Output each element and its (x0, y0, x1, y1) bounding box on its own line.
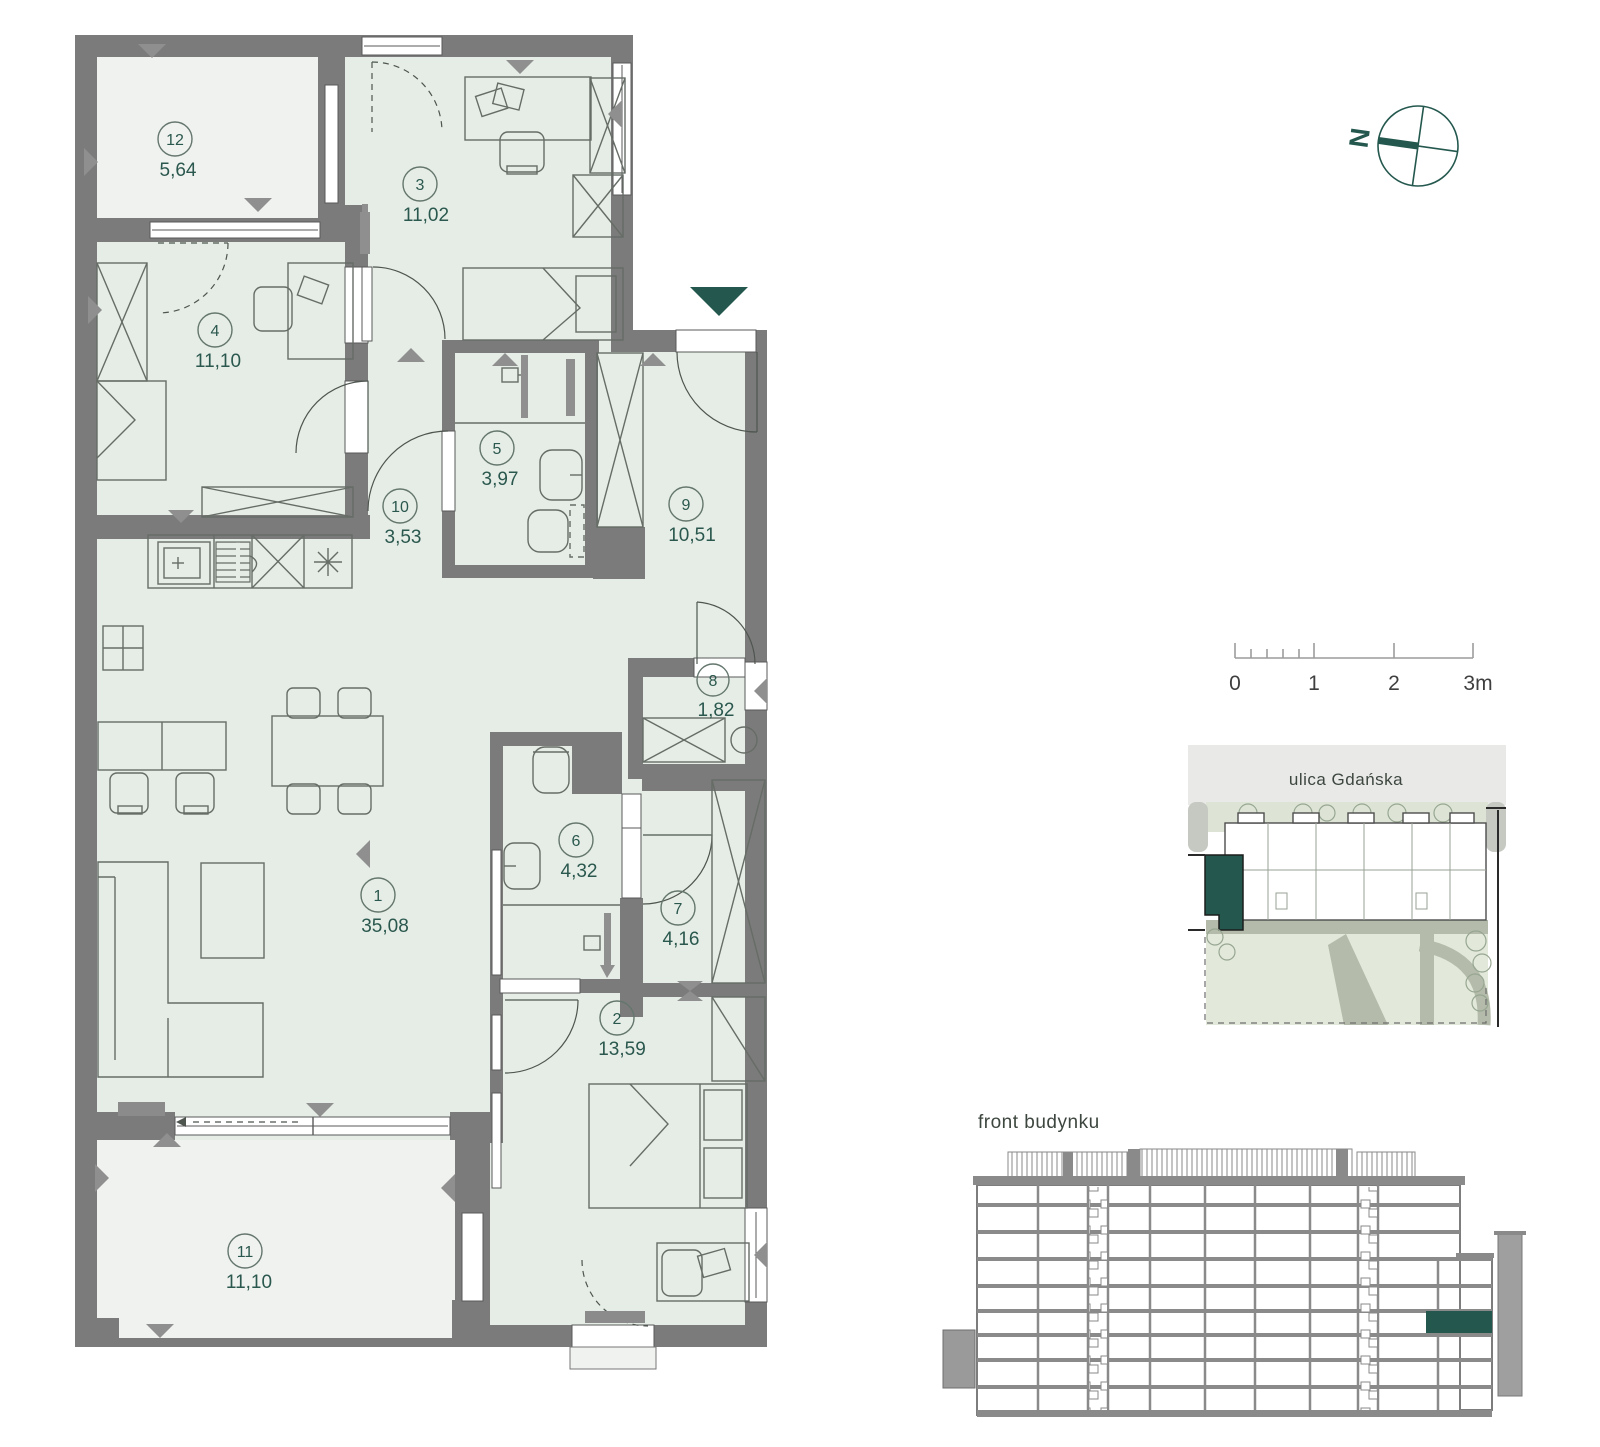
stair-column (1089, 1187, 1107, 1410)
plan-sheet: 135,08 213,59 311,02 411,10 53,97 64,32 … (0, 0, 1600, 1447)
svg-text:3,97: 3,97 (482, 469, 519, 490)
entrance-block (943, 1330, 975, 1388)
svg-text:12: 12 (166, 132, 184, 149)
scale-3m: 3m (1463, 672, 1492, 695)
roof-railings (1008, 1149, 1415, 1177)
front-elevation: front budynku (943, 1112, 1526, 1417)
north-label: N (1343, 126, 1375, 149)
shower-icon (604, 913, 611, 971)
radiator (566, 359, 575, 416)
balcony-12-floor (97, 57, 318, 220)
site-plan: ulica Gdańska (1188, 745, 1506, 1027)
stove (216, 542, 250, 582)
svg-text:11,10: 11,10 (226, 1272, 272, 1293)
side-slab (1498, 1233, 1522, 1396)
elevation-label: front budynku (978, 1112, 1100, 1133)
svg-text:8: 8 (709, 673, 718, 690)
svg-text:11,02: 11,02 (403, 205, 449, 226)
svg-text:2: 2 (613, 1011, 622, 1028)
svg-text:10,51: 10,51 (668, 525, 716, 546)
highlighted-unit-elevation (1426, 1311, 1492, 1333)
floor-plan: 135,08 213,59 311,02 411,10 53,97 64,32 … (75, 35, 767, 1369)
svg-text:1: 1 (374, 888, 383, 905)
svg-text:1,82: 1,82 (698, 700, 735, 721)
svg-text:5,64: 5,64 (160, 160, 197, 181)
scale-0: 0 (1229, 672, 1241, 695)
svg-text:35,08: 35,08 (361, 916, 409, 937)
svg-text:11,10: 11,10 (195, 351, 241, 372)
svg-text:3: 3 (416, 177, 425, 194)
svg-text:4: 4 (211, 323, 220, 340)
hood-icon (314, 548, 342, 576)
svg-text:13,59: 13,59 (598, 1039, 646, 1060)
svg-text:11: 11 (237, 1244, 254, 1261)
radiator (360, 212, 370, 254)
scale-1: 1 (1308, 672, 1320, 695)
street-label: ulica Gdańska (1289, 770, 1403, 789)
sideboard (585, 1311, 645, 1323)
balcony-11-floor (95, 1140, 455, 1338)
svg-text:6: 6 (572, 833, 581, 850)
svg-text:10: 10 (391, 499, 409, 516)
plan-canvas: 135,08 213,59 311,02 411,10 53,97 64,32 … (0, 0, 1600, 1447)
svg-text:4,16: 4,16 (663, 929, 700, 950)
highlighted-unit (1205, 855, 1243, 930)
svg-text:5: 5 (493, 441, 502, 458)
entrance-opening (676, 330, 756, 352)
svg-text:9: 9 (682, 497, 691, 514)
entrance-triangle-icon (690, 287, 748, 316)
compass: N (1339, 96, 1463, 191)
room-fills (95, 55, 767, 1338)
stair-column (1359, 1187, 1377, 1410)
svg-text:4,32: 4,32 (561, 861, 598, 882)
svg-text:7: 7 (674, 901, 683, 918)
svg-text:3,53: 3,53 (385, 527, 422, 548)
building-footprint (1225, 813, 1486, 920)
shower-icon (521, 355, 528, 418)
scale-2: 2 (1388, 672, 1400, 695)
scale-bar: 0 1 2 3m (1229, 643, 1492, 695)
north-needle-icon (1378, 137, 1419, 149)
window-bay (570, 1347, 656, 1369)
tv-bench (118, 1102, 165, 1116)
